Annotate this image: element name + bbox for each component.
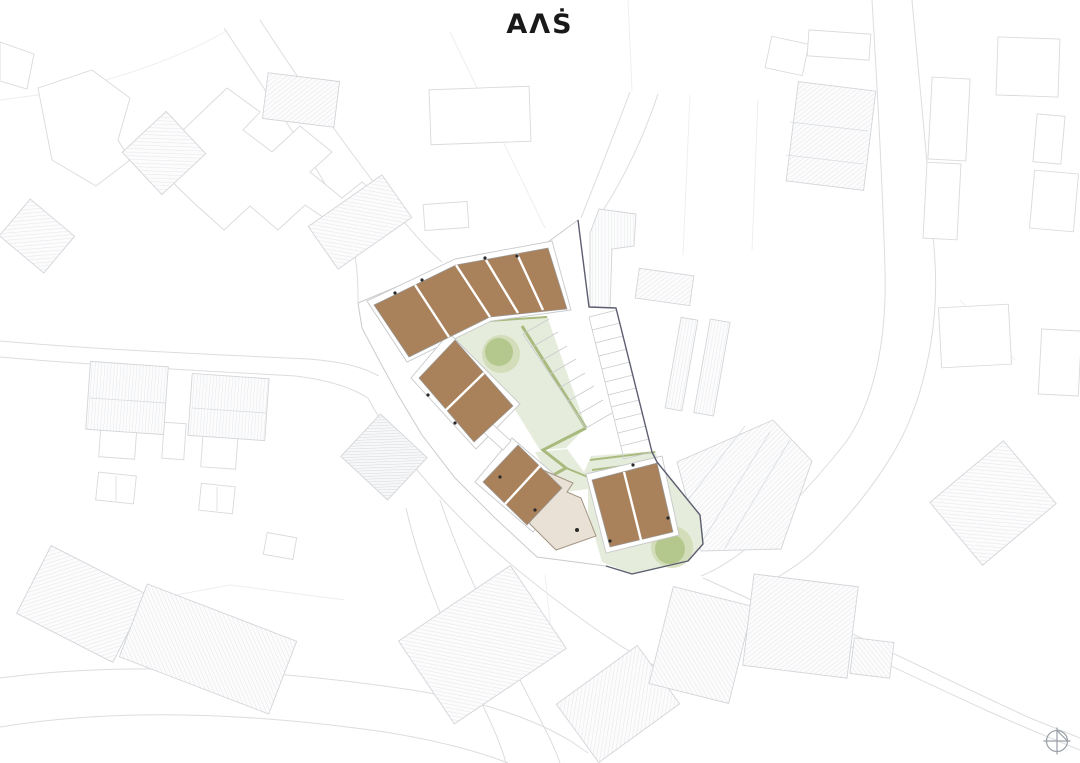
context-building-hatched: [635, 268, 694, 305]
tree: [485, 338, 513, 366]
context-building: [38, 70, 130, 186]
context-building: [807, 30, 871, 60]
context-apartment-block: [86, 361, 169, 434]
context-building: [1033, 114, 1065, 164]
context-building: [938, 304, 1011, 368]
context-building-hatched: [398, 566, 566, 724]
context-building: [162, 422, 186, 459]
north-arrow-icon: [1044, 728, 1071, 755]
context-building-hatched: [0, 199, 75, 273]
context-building: [1038, 329, 1080, 396]
context-building: [1030, 170, 1079, 232]
context-building-hatched: [341, 414, 427, 500]
context-building: [423, 201, 469, 230]
context-building-hatched: [590, 209, 636, 312]
context-building: [923, 162, 961, 240]
context-building: [0, 42, 34, 89]
context-building-hatched: [786, 82, 876, 191]
context-building: [928, 77, 970, 161]
context-building-hatched: [930, 441, 1056, 566]
context-building-hatched: [694, 319, 730, 416]
context-building-hatched: [649, 587, 753, 704]
context-building: [996, 37, 1060, 97]
logo-aas: AɅṠ: [506, 7, 573, 40]
context-garage-pair: [96, 472, 297, 559]
context-building-hatched: [665, 317, 698, 411]
context-apartment-block: [188, 373, 269, 440]
site-plan-page: AɅṠ: [0, 0, 1080, 763]
context-building-hatched: [119, 584, 296, 714]
context-building-hatched: [743, 574, 858, 678]
site-plan-drawing: AɅṠ: [0, 0, 1080, 763]
context-building: [429, 86, 531, 144]
context-building: [765, 36, 809, 75]
context-building-hatched: [262, 73, 339, 127]
context-building-hatched: [850, 638, 894, 679]
